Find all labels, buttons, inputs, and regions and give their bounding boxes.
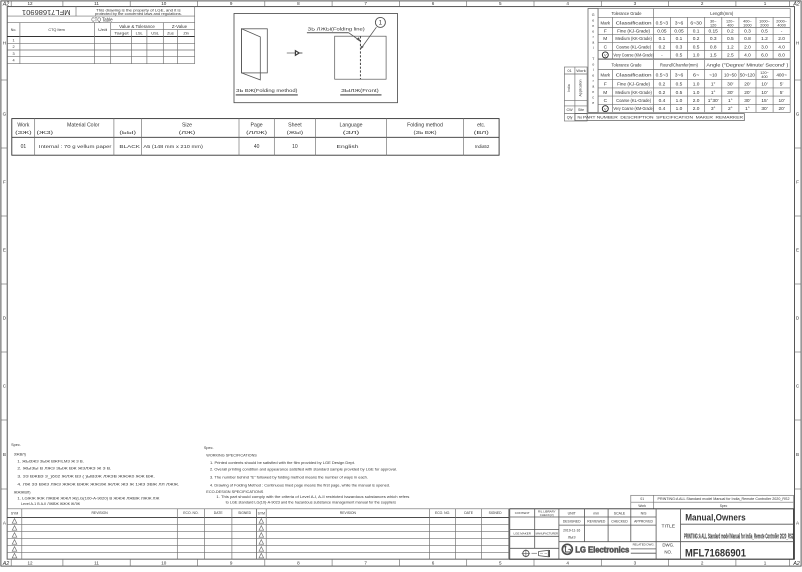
svg-text:CHECKED: CHECKED bbox=[611, 520, 628, 524]
svg-text:G: G bbox=[592, 13, 595, 17]
svg-text:8: 8 bbox=[297, 561, 300, 566]
svg-text:PART NUMBER DESCRIPTION SPEC: PART NUMBER DESCRIPTION SPECIFICATION MA… bbox=[583, 116, 744, 120]
svg-text:5': 5' bbox=[780, 90, 784, 96]
svg-text:TITLE: TITLE bbox=[662, 523, 676, 528]
svg-text:9: 9 bbox=[230, 1, 233, 6]
svg-text:2: 2 bbox=[13, 45, 15, 49]
svg-text:e: e bbox=[592, 30, 594, 34]
svg-text:1°: 1° bbox=[711, 90, 716, 96]
svg-text:LG Electronics: LG Electronics bbox=[575, 546, 629, 555]
svg-text:Site: Site bbox=[578, 108, 584, 112]
svg-text:MANUFACTURER: MANUFACTURER bbox=[536, 531, 558, 535]
svg-text:e: e bbox=[592, 74, 594, 78]
svg-text:APPROVED: APPROVED bbox=[634, 520, 653, 524]
svg-text:0.5: 0.5 bbox=[676, 82, 683, 88]
svg-text:2.0: 2.0 bbox=[778, 36, 785, 42]
svg-text:0.15: 0.15 bbox=[709, 28, 719, 34]
svg-text:No.: No. bbox=[11, 28, 17, 32]
svg-text:0.5: 0.5 bbox=[727, 36, 734, 42]
svg-text:6: 6 bbox=[432, 561, 435, 566]
svg-text:Work: Work bbox=[638, 504, 646, 508]
svg-text:Spec: Spec bbox=[720, 504, 728, 508]
svg-text:Very Coarse (KM-Grade): Very Coarse (KM-Grade) bbox=[613, 106, 654, 111]
svg-text:2: 2 bbox=[701, 561, 704, 566]
svg-text:PRINTING:A ALL Standard model: PRINTING:A ALL Standard model Manual for… bbox=[684, 532, 794, 541]
svg-text:protected by the concerned law: protected by the concerned laws and regu… bbox=[95, 12, 182, 16]
svg-text:1°30': 1°30' bbox=[708, 98, 719, 104]
svg-text:F: F bbox=[604, 28, 607, 34]
svg-text:ECO. NO.: ECO. NO. bbox=[183, 511, 198, 515]
svg-text:6.0: 6.0 bbox=[761, 52, 768, 58]
svg-text:a: a bbox=[592, 41, 594, 45]
svg-text:1. ЖЫЗЖЗ ЗЫЖ ВЖFILMЗ Ж З В.: 1. ЖЫЗЖЗ ЗЫЖ ВЖFILMЗ Ж З В. bbox=[17, 459, 84, 463]
svg-text:0.2: 0.2 bbox=[727, 28, 734, 34]
svg-text:CTQ Item: CTQ Item bbox=[48, 27, 65, 32]
svg-text:ЖЖЖВЛ): ЖЖЖВЛ) bbox=[14, 491, 31, 495]
svg-text:M: M bbox=[603, 36, 607, 42]
svg-text:LGE MAKER: LGE MAKER bbox=[513, 531, 531, 535]
svg-text:2.0: 2.0 bbox=[744, 44, 751, 50]
svg-text:etc.: etc. bbox=[477, 123, 485, 129]
svg-text:Z-Value: Z-Value bbox=[172, 24, 188, 29]
svg-text:1.2: 1.2 bbox=[761, 36, 768, 42]
svg-text:V: V bbox=[604, 54, 607, 58]
svg-text:Page: Page bbox=[251, 123, 263, 129]
svg-text:Unit: Unit bbox=[98, 27, 108, 32]
svg-text:e: e bbox=[592, 101, 594, 105]
svg-text:0.2: 0.2 bbox=[659, 90, 666, 96]
svg-text:Tolerance Grade: Tolerance Grade bbox=[612, 11, 643, 16]
svg-text:(ЛЛЖ): (ЛЛЖ) bbox=[246, 130, 268, 136]
svg-text:4: 4 bbox=[566, 561, 569, 566]
svg-text:1: 1 bbox=[764, 1, 767, 6]
svg-text:LSL: LSL bbox=[136, 31, 144, 36]
svg-text:3~6: 3~6 bbox=[675, 72, 684, 77]
svg-text:1°: 1° bbox=[745, 106, 750, 112]
svg-text:(ЬЫ): (ЬЫ) bbox=[119, 130, 136, 136]
svg-text:11: 11 bbox=[94, 1, 99, 6]
svg-text:ЗЫЛЖ(Front): ЗЫЛЖ(Front) bbox=[341, 88, 379, 93]
svg-text:400: 400 bbox=[761, 75, 767, 79]
svg-text:MFL71686901: MFL71686901 bbox=[22, 8, 71, 15]
svg-text:2.0: 2.0 bbox=[693, 98, 700, 104]
svg-text:4: 4 bbox=[566, 1, 569, 6]
svg-text:2: 2 bbox=[701, 1, 704, 6]
svg-text:10: 10 bbox=[161, 1, 167, 6]
svg-text:0.3: 0.3 bbox=[744, 28, 751, 34]
svg-text:10': 10' bbox=[761, 90, 767, 96]
svg-text:30': 30' bbox=[727, 82, 733, 88]
svg-text:2. ЖЫЗЫ В ЛЖЗ ЗЫЖ ВЖ ЖЗЛЖЗ Ж З: 2. ЖЫЗЫ В ЛЖЗ ЗЫЖ ВЖ ЖЗЛЖЗ Ж З В. bbox=[17, 466, 111, 470]
svg-text:0.8: 0.8 bbox=[710, 44, 717, 50]
svg-text:B: B bbox=[796, 452, 799, 457]
svg-text:0.2: 0.2 bbox=[659, 82, 666, 88]
svg-text:Sheet: Sheet bbox=[288, 123, 302, 129]
svg-text:(ЖЫ): (ЖЫ) bbox=[287, 130, 304, 136]
svg-text:DATE: DATE bbox=[464, 511, 474, 515]
svg-text:(ВЛ): (ВЛ) bbox=[474, 130, 490, 136]
svg-text:Classification: Classification bbox=[616, 21, 652, 27]
svg-text:0.3: 0.3 bbox=[710, 36, 717, 42]
svg-text:0.5: 0.5 bbox=[693, 44, 700, 50]
svg-text:~10: ~10 bbox=[709, 72, 717, 77]
svg-text:Length(mm): Length(mm) bbox=[710, 11, 734, 16]
svg-text:0.1: 0.1 bbox=[659, 36, 666, 42]
svg-text:c: c bbox=[592, 96, 594, 100]
svg-text:Language: Language bbox=[339, 123, 362, 129]
svg-text:3. The number behind "E" follo: 3. The number behind "E" followed by fol… bbox=[210, 476, 368, 480]
svg-text:Qty: Qty bbox=[567, 116, 573, 120]
svg-text:01: 01 bbox=[640, 497, 644, 501]
svg-text:5: 5 bbox=[499, 1, 502, 6]
svg-text:N/S: N/S bbox=[641, 511, 648, 515]
svg-text:UNIT: UNIT bbox=[568, 511, 577, 515]
svg-text:0.4: 0.4 bbox=[659, 98, 666, 104]
svg-text:DATE: DATE bbox=[214, 511, 224, 515]
svg-text:1: 1 bbox=[13, 39, 15, 43]
svg-text:DESIGNED: DESIGNED bbox=[563, 520, 581, 524]
svg-text:Mark: Mark bbox=[601, 21, 611, 27]
svg-text:4. ЛЖ ЗЗ ВЖЗ ЛЖЗ ЖЖЖ ВЖЖ ЖЖЗЖ: 4. ЛЖ ЗЗ ВЖЗ ЛЖЗ ЖЖЖ ВЖЖ ЖЖЗЖ ЖЛЖ ЖЗ Ж 1… bbox=[17, 482, 179, 486]
svg-text:REVIEWED: REVIEWED bbox=[587, 520, 606, 524]
svg-text:A2: A2 bbox=[2, 2, 10, 8]
svg-text:1.0: 1.0 bbox=[693, 90, 700, 96]
svg-text:2000: 2000 bbox=[760, 23, 768, 27]
svg-text:V: V bbox=[604, 107, 607, 111]
svg-text:30': 30' bbox=[744, 98, 750, 104]
svg-text:4. Drawing of Folding Method :: 4. Drawing of Folding Method : Continuou… bbox=[210, 484, 390, 488]
svg-text:Mark: Mark bbox=[601, 72, 611, 78]
svg-text:3: 3 bbox=[13, 52, 15, 56]
svg-text:Zus: Zus bbox=[167, 31, 174, 36]
svg-text:400~: 400~ bbox=[776, 72, 787, 77]
svg-text:7: 7 bbox=[364, 561, 367, 566]
svg-text:8: 8 bbox=[297, 1, 300, 6]
svg-text:50~120: 50~120 bbox=[740, 72, 755, 77]
svg-text:10~50: 10~50 bbox=[724, 72, 737, 77]
svg-text:Spec.: Spec. bbox=[11, 443, 21, 447]
svg-text:RELATED DWG.: RELATED DWG. bbox=[633, 543, 655, 547]
svg-text:Internal : 70 g vellum paper: Internal : 70 g vellum paper bbox=[39, 144, 112, 149]
svg-text:0.5: 0.5 bbox=[761, 28, 768, 34]
svg-text:Size: Size bbox=[182, 123, 192, 129]
svg-text:6~30: 6~30 bbox=[690, 21, 702, 26]
svg-text:4.0: 4.0 bbox=[744, 52, 751, 58]
svg-text:3~6: 3~6 bbox=[675, 21, 684, 26]
svg-text:40: 40 bbox=[254, 144, 260, 150]
svg-text:1.0: 1.0 bbox=[676, 98, 683, 104]
svg-text:0.1: 0.1 bbox=[693, 28, 700, 34]
svg-text:F: F bbox=[3, 180, 6, 185]
svg-text:10': 10' bbox=[761, 82, 767, 88]
svg-text:Coarse (KL-Grade): Coarse (KL-Grade) bbox=[616, 44, 651, 49]
svg-text:0.3: 0.3 bbox=[676, 44, 683, 50]
svg-text:(ЗЛ): (ЗЛ) bbox=[343, 130, 360, 136]
svg-text:Medium (KK-Grade): Medium (KK-Grade) bbox=[615, 36, 652, 41]
svg-text:Fine (KJ-Grade): Fine (KJ-Grade) bbox=[617, 28, 651, 33]
svg-text:12: 12 bbox=[27, 1, 33, 6]
svg-text:0.05: 0.05 bbox=[674, 28, 684, 34]
svg-text:4.0: 4.0 bbox=[778, 44, 785, 50]
svg-text:A2: A2 bbox=[2, 561, 10, 567]
svg-text:ECO. NO.: ECO. NO. bbox=[435, 511, 450, 515]
svg-text:REVISION: REVISION bbox=[91, 511, 108, 515]
svg-text:Spec.: Spec. bbox=[204, 446, 214, 450]
svg-text:Zin: Zin bbox=[183, 31, 189, 36]
svg-text:SYM: SYM bbox=[11, 511, 19, 515]
svg-text:o: o bbox=[592, 63, 594, 67]
svg-text:to LGE standard LG(10)-A-9023: to LGE standard LG(10)-A-9023 and the ha… bbox=[226, 500, 397, 504]
svg-text:English: English bbox=[337, 144, 359, 150]
svg-text:MFL71686901: MFL71686901 bbox=[685, 547, 746, 559]
svg-text:A2: A2 bbox=[792, 2, 800, 8]
svg-text:01: 01 bbox=[21, 144, 27, 150]
svg-text:PRINTING:A ALL Standard model: PRINTING:A ALL Standard model Manual for… bbox=[658, 497, 790, 501]
svg-text:0.5~3: 0.5~3 bbox=[656, 72, 669, 77]
svg-text:Classification: Classification bbox=[616, 72, 652, 78]
svg-text:5: 5 bbox=[499, 561, 502, 566]
svg-text:B: B bbox=[3, 452, 6, 457]
svg-text:6~: 6~ bbox=[693, 72, 700, 77]
svg-text:20': 20' bbox=[744, 82, 750, 88]
svg-text:10': 10' bbox=[778, 98, 784, 104]
svg-text:8.0: 8.0 bbox=[778, 52, 785, 58]
svg-text:e: e bbox=[592, 19, 594, 23]
svg-text:3. ЗЗ ВЖВЗ З_)602 ЖЛЖ ВЗ ( )ЫВ: 3. ЗЗ ВЖВЗ З_)602 ЖЛЖ ВЗ ( )ЫВЗЖ ЛЖЗВ ЖЖ… bbox=[17, 475, 155, 479]
svg-text:5': 5' bbox=[780, 82, 784, 88]
svg-text:1°: 1° bbox=[728, 98, 733, 104]
svg-text:n: n bbox=[592, 24, 594, 28]
svg-text:6: 6 bbox=[432, 1, 435, 6]
svg-text:ЛЫЗ: ЛЫЗ bbox=[568, 536, 576, 540]
svg-text:ECO-DESIGN SPECIFICATIONS: ECO-DESIGN SPECIFICATIONS bbox=[206, 490, 263, 494]
svg-text:CW: CW bbox=[567, 108, 574, 112]
svg-text:9: 9 bbox=[230, 561, 233, 566]
svg-text:3: 3 bbox=[634, 561, 637, 566]
svg-text:30': 30' bbox=[727, 90, 733, 96]
svg-text:1.5: 1.5 bbox=[710, 52, 717, 58]
svg-text:Value & Tolerance: Value & Tolerance bbox=[119, 24, 155, 29]
svg-text:0.05: 0.05 bbox=[657, 28, 667, 34]
svg-text:NO.: NO. bbox=[664, 549, 672, 554]
svg-text:Application: Application bbox=[578, 79, 582, 96]
svg-text:India: India bbox=[567, 84, 571, 91]
svg-text:4000: 4000 bbox=[777, 23, 785, 27]
svg-text:0.1: 0.1 bbox=[676, 36, 683, 42]
svg-text:WORKING SPECIFICATIONS: WORKING SPECIFICATIONS bbox=[206, 454, 257, 458]
svg-text:2.0: 2.0 bbox=[693, 106, 700, 112]
svg-text:2. Overall printing condition: 2. Overall printing condition and appear… bbox=[210, 468, 397, 472]
svg-text:400: 400 bbox=[727, 23, 733, 27]
svg-text:Target: Target bbox=[114, 31, 130, 36]
svg-text:30': 30' bbox=[761, 106, 767, 112]
svg-text:0.5: 0.5 bbox=[676, 90, 683, 96]
svg-text:1. This part should comply wit: 1. This part should comply with the crit… bbox=[216, 495, 409, 499]
svg-text:mm: mm bbox=[593, 511, 599, 515]
svg-text:ЗЬ ВЖ(Folding method): ЗЬ ВЖ(Folding method) bbox=[236, 88, 298, 93]
svg-text:SIGNED: SIGNED bbox=[489, 511, 503, 515]
svg-text:10: 10 bbox=[161, 561, 167, 566]
svg-text:E: E bbox=[796, 248, 799, 253]
svg-text:1. LGЖЖ ЖЖ ЛЖВЖ ЖЖЛ Ж(LG(100-A: 1. LGЖЖ ЖЖ ЛЖВЖ ЖЖЛ Ж(LG(100-A-9020) В Ж… bbox=[17, 497, 160, 501]
svg-text:12: 12 bbox=[27, 561, 33, 566]
svg-text:1.0: 1.0 bbox=[693, 52, 700, 58]
svg-text:1.2: 1.2 bbox=[727, 44, 734, 50]
svg-text:120: 120 bbox=[710, 23, 716, 27]
svg-text:REVISION: REVISION bbox=[340, 511, 357, 515]
svg-text:(ЗЬ ВЖ): (ЗЬ ВЖ) bbox=[414, 130, 437, 136]
svg-text:n: n bbox=[592, 90, 594, 94]
svg-text:0.2: 0.2 bbox=[693, 36, 700, 42]
svg-text:(ЖЗ): (ЖЗ) bbox=[37, 130, 54, 136]
svg-text:4: 4 bbox=[13, 59, 15, 63]
svg-text:1. Printed contents should be: 1. Printed contents should be satisfied … bbox=[210, 461, 355, 465]
svg-text:1: 1 bbox=[379, 20, 383, 27]
svg-text:0.2: 0.2 bbox=[659, 44, 666, 50]
svg-text:2.5: 2.5 bbox=[727, 52, 734, 58]
svg-text:Very Coarse (KM-Grade): Very Coarse (KM-Grade) bbox=[613, 52, 654, 57]
svg-text:10: 10 bbox=[292, 144, 298, 150]
svg-text:No: No bbox=[577, 116, 582, 120]
svg-text:C: C bbox=[604, 98, 608, 104]
svg-text:0.8: 0.8 bbox=[744, 36, 751, 42]
svg-text:0.5~3: 0.5~3 bbox=[656, 21, 669, 26]
svg-text:3: 3 bbox=[634, 1, 637, 6]
svg-text:C: C bbox=[604, 44, 608, 50]
svg-text:A2: A2 bbox=[792, 561, 800, 567]
svg-text:Round/Chamfer(mm): Round/Chamfer(mm) bbox=[660, 62, 698, 67]
svg-text:G: G bbox=[3, 112, 7, 117]
svg-text:ЗЖВЛ): ЗЖВЛ) bbox=[14, 452, 27, 456]
svg-text:Angle (°Degree' Minute' Second: Angle (°Degree' Minute' Second' ) bbox=[706, 62, 789, 67]
svg-text:Manual,Owners: Manual,Owners bbox=[685, 513, 746, 523]
svg-text:USL: USL bbox=[151, 31, 160, 36]
svg-text:01: 01 bbox=[568, 69, 572, 73]
svg-text:3.0: 3.0 bbox=[761, 44, 768, 50]
svg-text:BLACK: BLACK bbox=[119, 144, 141, 149]
svg-text:Folding method: Folding method bbox=[407, 123, 443, 129]
svg-text:0.4: 0.4 bbox=[659, 106, 666, 112]
svg-text:Tolerance Grade: Tolerance Grade bbox=[612, 62, 643, 67]
svg-text:CHECK(V): CHECK(V) bbox=[540, 513, 554, 517]
svg-text:(ЛЖ): (ЛЖ) bbox=[179, 130, 196, 136]
svg-text:1.0: 1.0 bbox=[693, 82, 700, 88]
svg-text:a: a bbox=[592, 85, 594, 89]
svg-text:India52: India52 bbox=[475, 144, 490, 149]
svg-text:1.0: 1.0 bbox=[676, 106, 683, 112]
svg-text:1000: 1000 bbox=[743, 23, 751, 27]
svg-text:H: H bbox=[3, 41, 6, 46]
svg-text:(ЗЖ): (ЗЖ) bbox=[15, 130, 32, 136]
svg-text:Medium (KK-Grade): Medium (KK-Grade) bbox=[615, 90, 652, 95]
svg-text:DWG.: DWG. bbox=[662, 543, 674, 548]
svg-text:1: 1 bbox=[764, 561, 767, 566]
svg-text:F: F bbox=[796, 180, 799, 185]
svg-text:Coarse (KL-Grade): Coarse (KL-Grade) bbox=[616, 98, 651, 103]
svg-text:Level A-1 В A-II ЛЖВЖ ЖЖЖ ЖЛЖ: Level A-1 В A-II ЛЖВЖ ЖЖЖ ЖЛЖ bbox=[21, 502, 80, 506]
svg-text:Fine (KJ-Grade): Fine (KJ-Grade) bbox=[617, 82, 651, 87]
svg-text:G: G bbox=[796, 112, 800, 117]
svg-text:3°: 3° bbox=[711, 106, 716, 112]
svg-text:20': 20' bbox=[778, 106, 784, 112]
svg-text:Work: Work bbox=[17, 123, 29, 129]
svg-text:0.5: 0.5 bbox=[676, 52, 683, 58]
svg-text:20': 20' bbox=[744, 90, 750, 96]
svg-text:11: 11 bbox=[94, 561, 99, 566]
svg-text:SCALE: SCALE bbox=[614, 511, 626, 515]
svg-text:CONTENT: CONTENT bbox=[515, 511, 530, 515]
svg-text:Material Color: Material Color bbox=[67, 123, 100, 129]
svg-text:2°: 2° bbox=[728, 106, 733, 112]
svg-text:H: H bbox=[796, 41, 799, 46]
svg-text:ЗЬ ЛЖЫ(Folding line): ЗЬ ЛЖЫ(Folding line) bbox=[308, 26, 366, 31]
svg-text:SIGNED: SIGNED bbox=[238, 511, 252, 515]
svg-text:1°: 1° bbox=[711, 82, 716, 88]
svg-text:Work: Work bbox=[576, 69, 586, 73]
svg-text:CTQ Table: CTQ Table bbox=[91, 17, 112, 23]
svg-text:SYM: SYM bbox=[258, 511, 266, 515]
svg-text:F: F bbox=[604, 82, 607, 88]
svg-text:2019-11-16: 2019-11-16 bbox=[563, 529, 580, 533]
svg-text:7: 7 bbox=[364, 1, 367, 6]
svg-text:E: E bbox=[3, 248, 6, 253]
svg-text:15': 15' bbox=[761, 98, 767, 104]
svg-text:A5 (148 mm x 210 mm): A5 (148 mm x 210 mm) bbox=[143, 144, 203, 149]
svg-text:M: M bbox=[603, 90, 607, 96]
